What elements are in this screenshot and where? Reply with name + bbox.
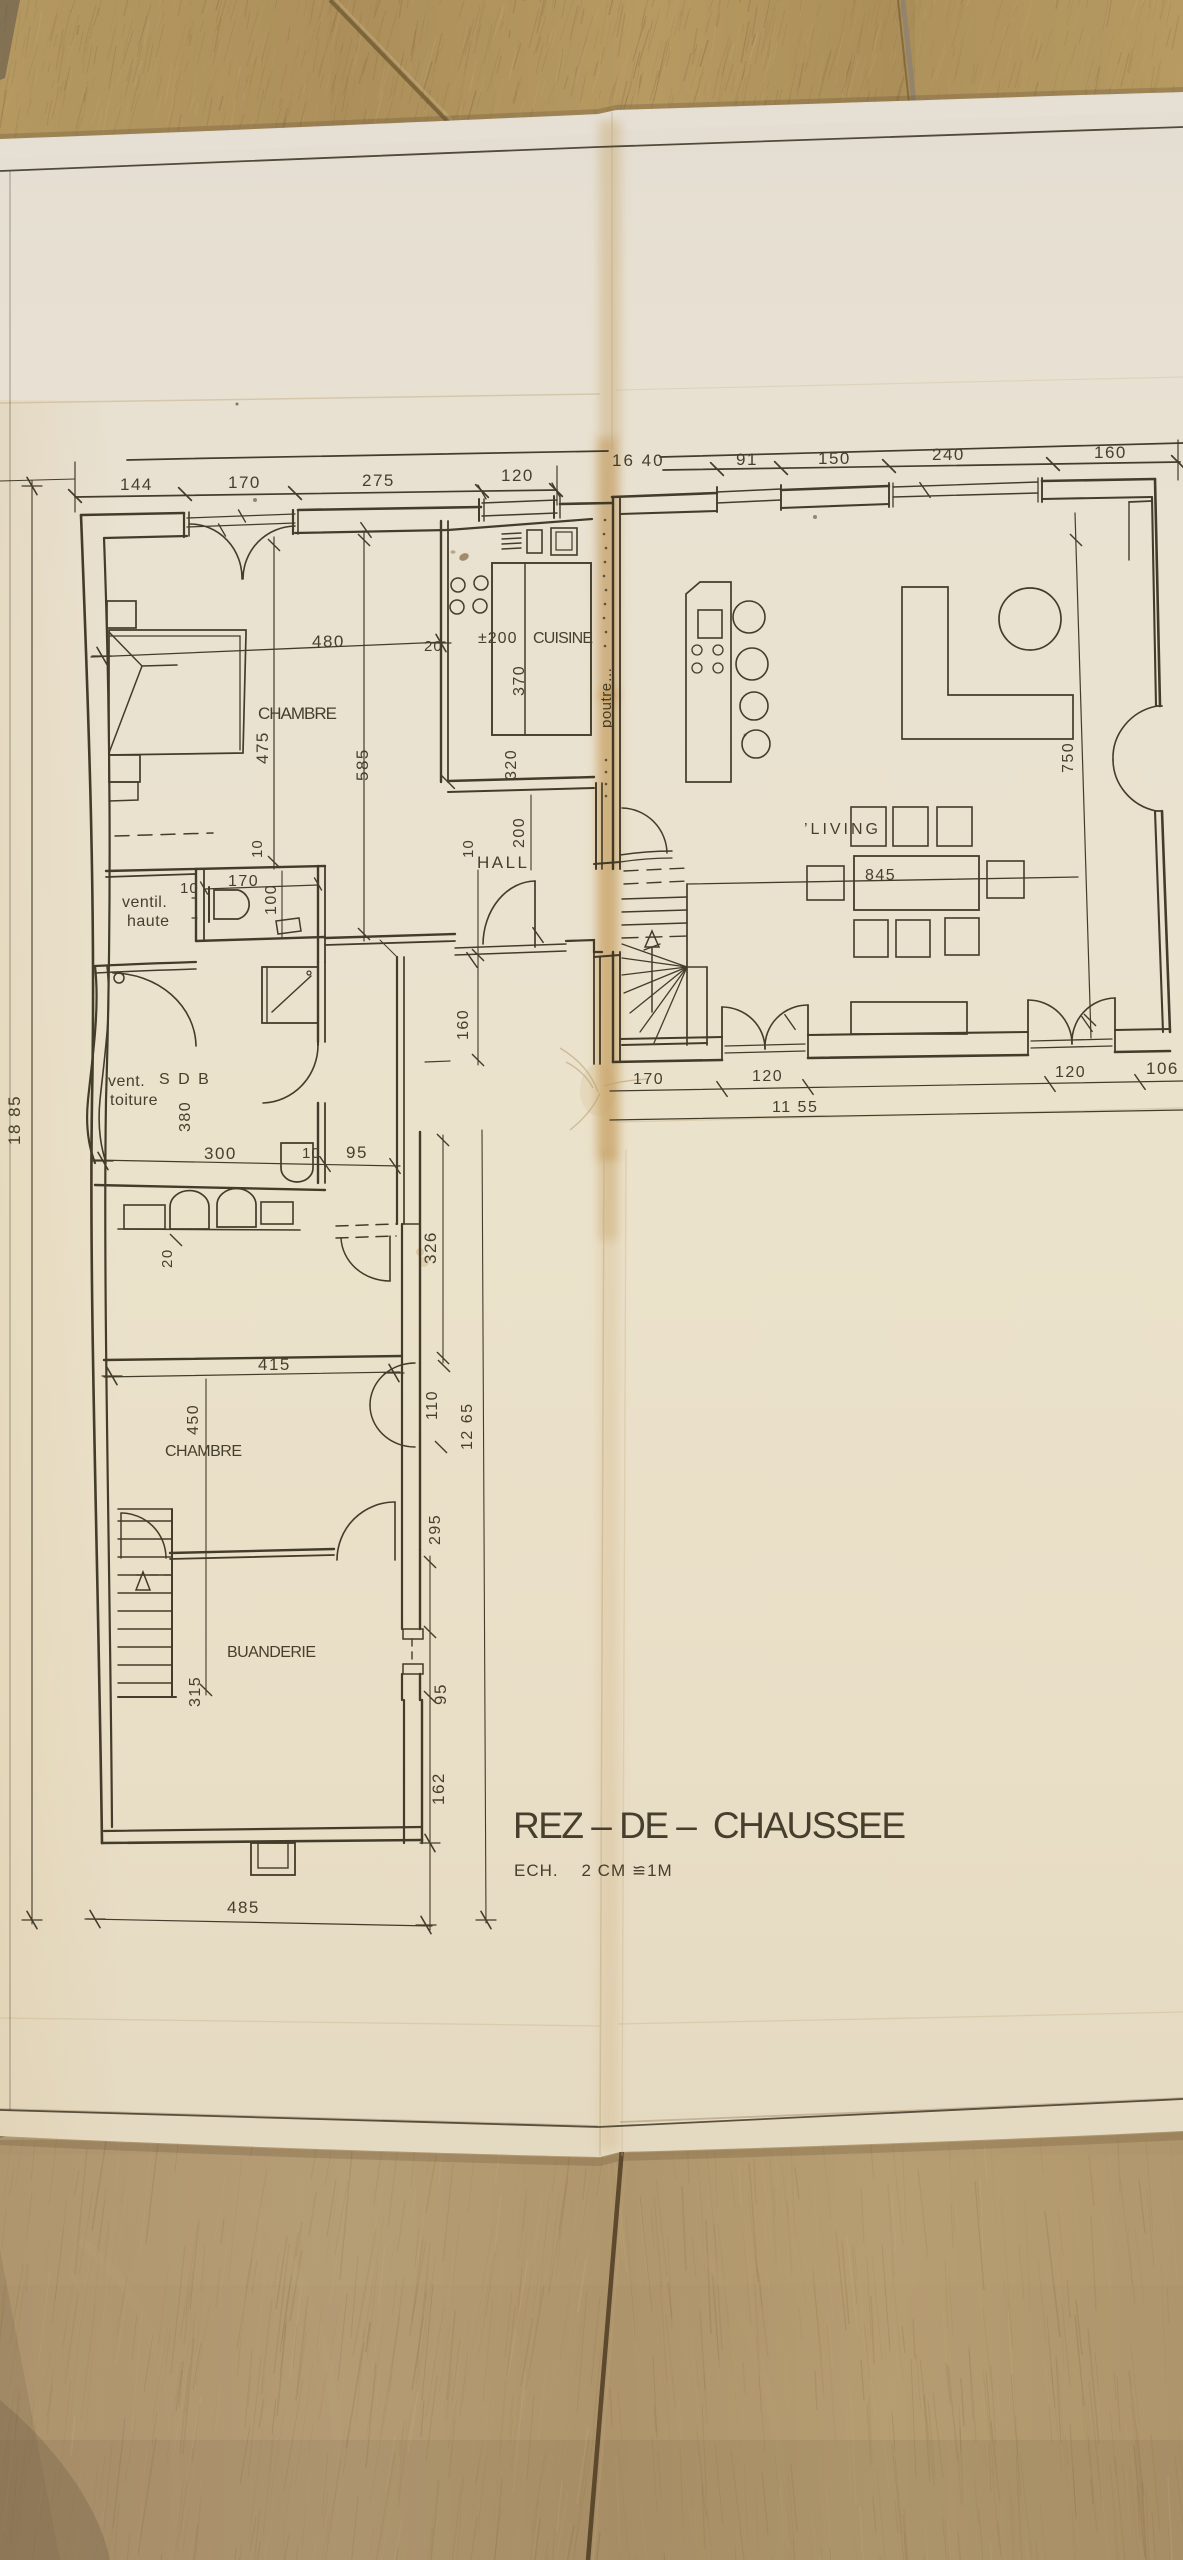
svg-text:HALL: HALL <box>477 853 531 872</box>
svg-text:120: 120 <box>1055 1064 1086 1081</box>
svg-text:480: 480 <box>312 632 345 651</box>
svg-text:vent.: vent. <box>108 1073 145 1090</box>
svg-text:144: 144 <box>120 475 153 494</box>
svg-text:16 40: 16 40 <box>612 451 665 470</box>
svg-text:475: 475 <box>253 731 272 764</box>
svg-text:120: 120 <box>752 1068 783 1085</box>
svg-text:11 55: 11 55 <box>772 1099 818 1116</box>
svg-text:10: 10 <box>302 1145 321 1162</box>
svg-text:200: 200 <box>511 817 528 848</box>
svg-text:485: 485 <box>227 1898 260 1917</box>
svg-text:S D B: S D B <box>159 1071 211 1088</box>
svg-text:160: 160 <box>1094 443 1127 462</box>
svg-text:95: 95 <box>346 1143 368 1162</box>
svg-text:380: 380 <box>177 1101 194 1132</box>
svg-text:10: 10 <box>249 839 266 858</box>
svg-text:275: 275 <box>362 471 395 490</box>
svg-text:170: 170 <box>228 473 261 492</box>
svg-text:toiture: toiture <box>110 1092 158 1109</box>
svg-text:106: 106 <box>1146 1059 1179 1078</box>
svg-text:BUANDERIE: BUANDERIE <box>227 1644 319 1661</box>
svg-text:585: 585 <box>353 748 372 781</box>
svg-text:162: 162 <box>429 1772 448 1805</box>
svg-text:CHAMBRE: CHAMBRE <box>258 704 340 723</box>
svg-text:12 65: 12 65 <box>459 1402 476 1450</box>
svg-text:295: 295 <box>427 1514 444 1545</box>
svg-text:326: 326 <box>421 1231 440 1264</box>
svg-text:haute: haute <box>127 913 170 930</box>
svg-text:’LIVING: ’LIVING <box>804 821 880 838</box>
svg-text:poutre…: poutre… <box>598 667 615 728</box>
svg-text:20: 20 <box>424 638 443 655</box>
svg-text:ventil.: ventil. <box>122 894 167 911</box>
svg-text:240: 240 <box>932 445 965 464</box>
svg-text:845: 845 <box>865 867 896 884</box>
svg-text:CHAMBRE: CHAMBRE <box>165 1443 245 1460</box>
svg-text:REZ – DE – CHAUSSEE: REZ – DE – CHAUSSEE <box>513 1805 911 1846</box>
svg-text:10: 10 <box>460 839 477 858</box>
svg-text:750: 750 <box>1060 742 1077 773</box>
svg-text:110: 110 <box>424 1390 441 1420</box>
svg-text:170: 170 <box>633 1071 664 1088</box>
svg-text:CUISINE: CUISINE <box>533 630 595 647</box>
svg-text:320: 320 <box>503 749 520 780</box>
svg-text:170: 170 <box>228 873 259 890</box>
svg-text:300: 300 <box>204 1144 237 1163</box>
svg-text:18 85: 18 85 <box>5 1095 24 1145</box>
svg-text:315: 315 <box>187 1676 204 1707</box>
svg-text:ECH. 2 CM ≌1M: ECH. 2 CM ≌1M <box>514 1861 673 1880</box>
svg-text:±200: ±200 <box>478 630 517 647</box>
svg-text:150: 150 <box>818 449 851 468</box>
svg-text:160: 160 <box>455 1009 472 1040</box>
svg-text:120: 120 <box>501 466 534 485</box>
svg-text:95: 95 <box>431 1683 450 1705</box>
svg-text:91: 91 <box>736 450 758 469</box>
svg-text:415: 415 <box>258 1355 291 1374</box>
svg-text:370: 370 <box>511 665 528 696</box>
svg-text:450: 450 <box>185 1404 202 1435</box>
svg-text:20: 20 <box>159 1248 176 1268</box>
svg-text:100: 100 <box>263 884 280 915</box>
svg-text:10: 10 <box>180 880 199 897</box>
